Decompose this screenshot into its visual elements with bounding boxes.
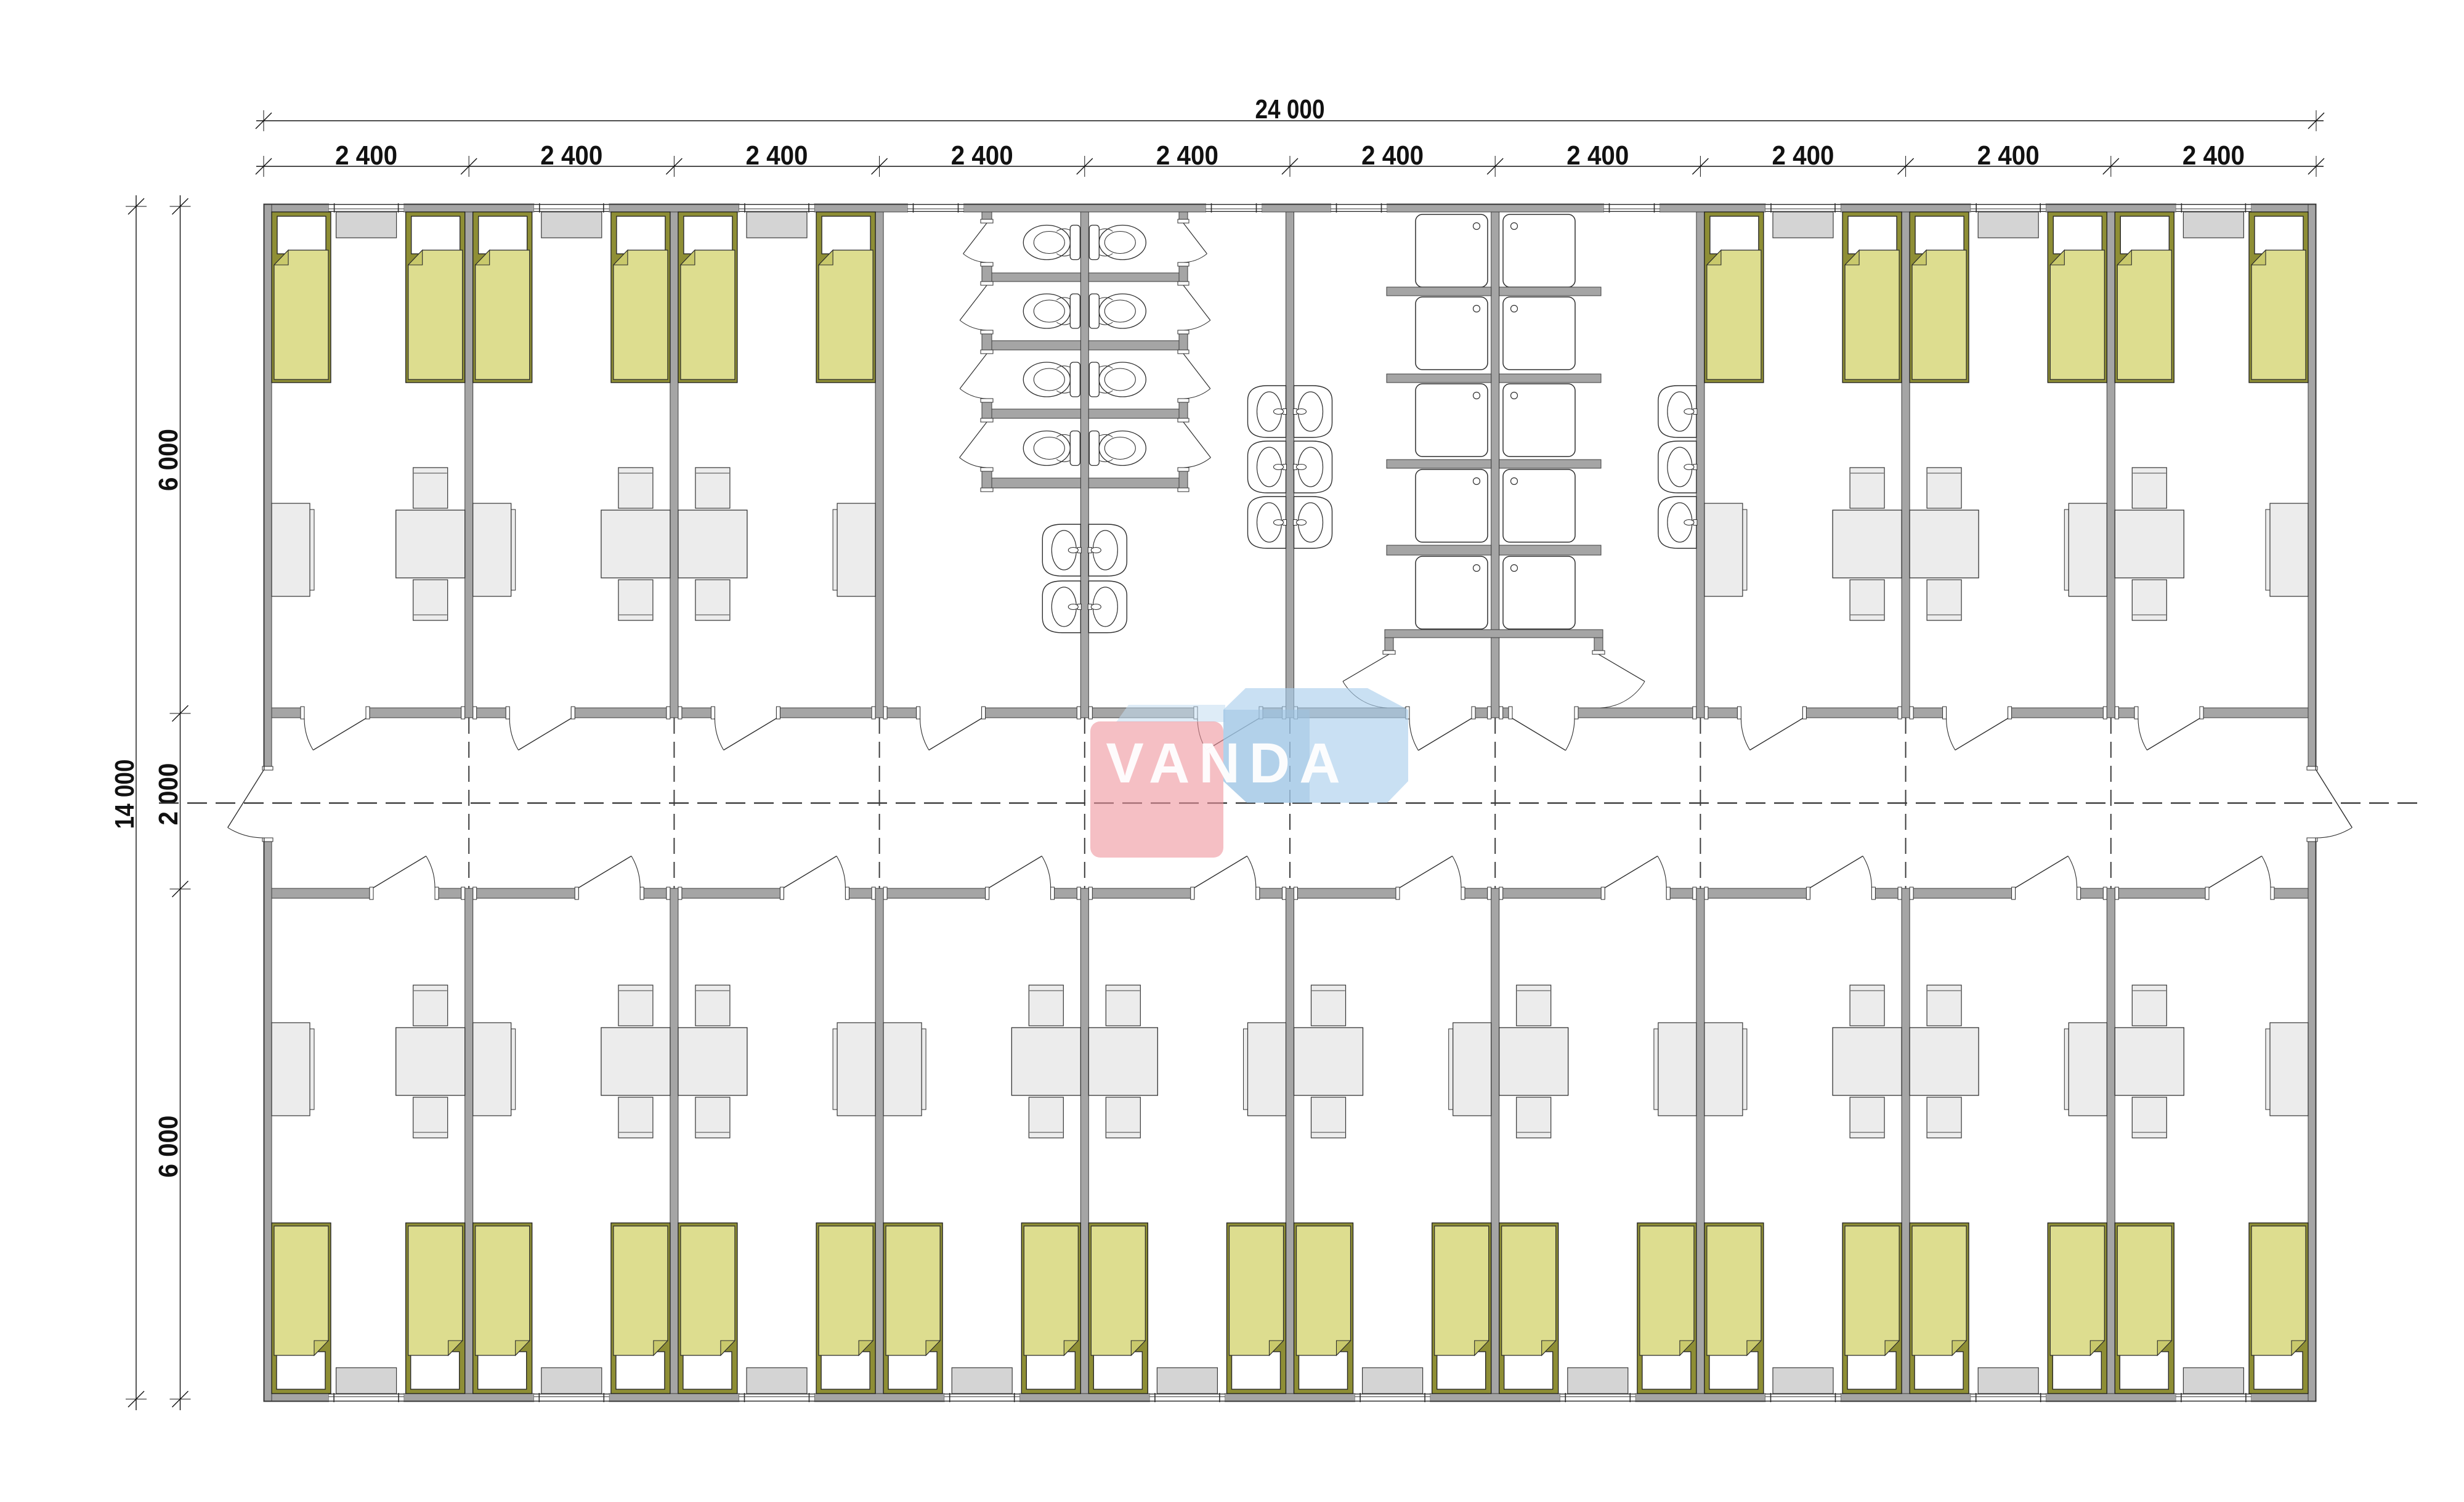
svg-text:2 400: 2 400 xyxy=(335,140,397,171)
svg-text:2 400: 2 400 xyxy=(951,140,1013,171)
svg-text:2 400: 2 400 xyxy=(746,140,808,171)
svg-text:VANDA: VANDA xyxy=(1106,732,1349,795)
svg-text:2 400: 2 400 xyxy=(1156,140,1218,171)
svg-text:2 400: 2 400 xyxy=(1566,140,1629,171)
svg-text:14 000: 14 000 xyxy=(110,760,140,829)
svg-text:6 000: 6 000 xyxy=(153,1116,184,1178)
svg-text:2 400: 2 400 xyxy=(540,140,602,171)
svg-text:2 400: 2 400 xyxy=(1977,140,2040,171)
svg-text:2 400: 2 400 xyxy=(1772,140,1834,171)
svg-text:2 400: 2 400 xyxy=(1361,140,1424,171)
svg-text:24 000: 24 000 xyxy=(1255,94,1325,124)
svg-text:2 000: 2 000 xyxy=(153,763,184,826)
svg-text:2 400: 2 400 xyxy=(2182,140,2245,171)
svg-text:6 000: 6 000 xyxy=(153,429,184,491)
